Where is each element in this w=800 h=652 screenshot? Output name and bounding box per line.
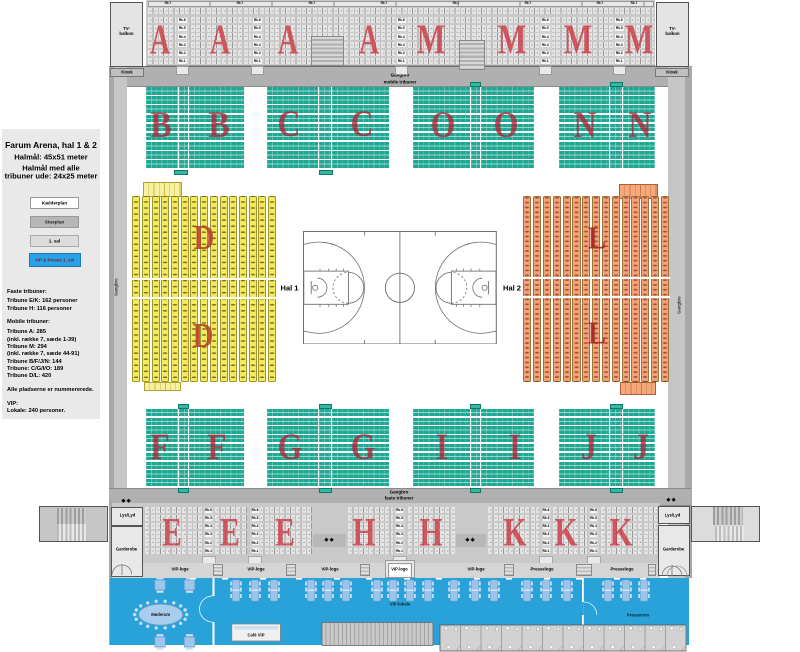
svg-text:Café VIP: Café VIP bbox=[248, 633, 265, 638]
svg-text:Presserum: Presserum bbox=[627, 613, 649, 618]
svg-text:VIP-lokale: VIP-lokale bbox=[390, 602, 411, 607]
svg-text:Møderum: Møderum bbox=[151, 612, 170, 617]
